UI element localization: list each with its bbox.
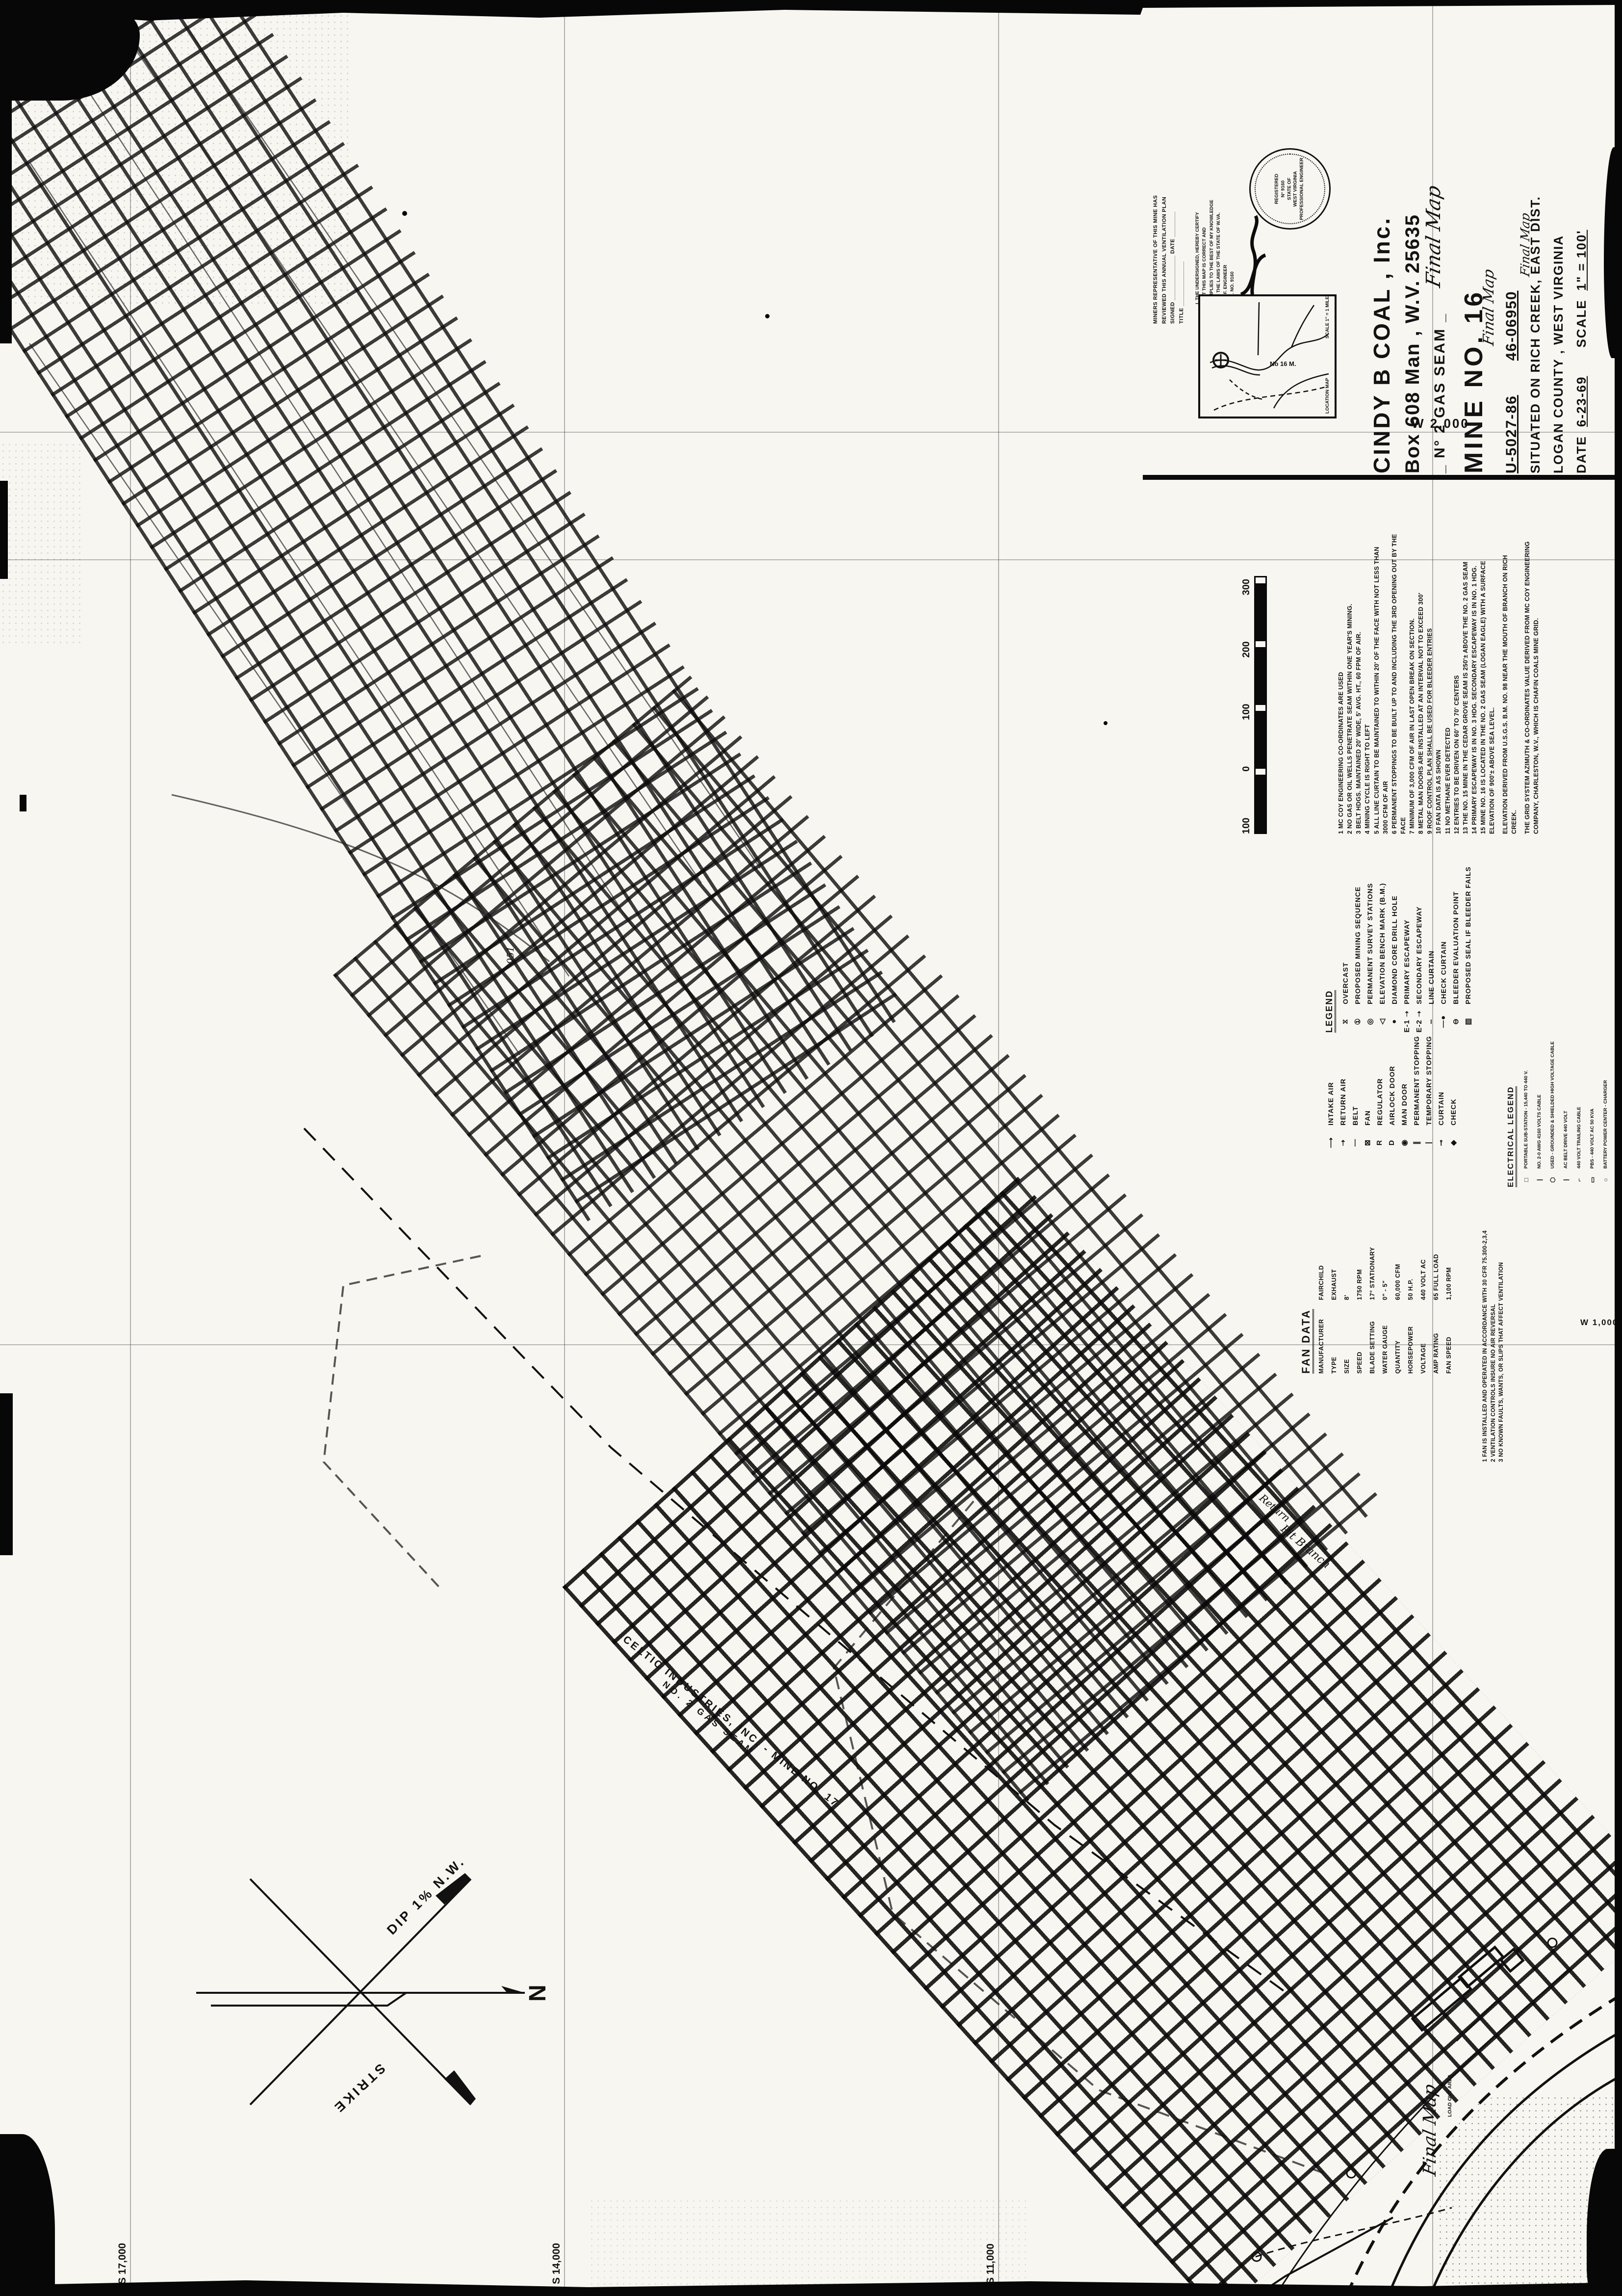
legend-item-label: PERMANENT SURVEY STATIONS: [1366, 883, 1374, 1004]
legend-symbol-icon: ∥: [1412, 1131, 1421, 1154]
fan-data-row: SPEED 1750 RPM: [1356, 1204, 1369, 1374]
review-signed-line: SIGNED ______________ DATE ________: [1169, 123, 1178, 324]
legend-items: ⧖ OVERCAST ① PROPOSED MINING SEQUENCE ◎ …: [1339, 881, 1474, 1033]
electrical-item-label: AC BELT DRIVE 440 VOLT: [1564, 1111, 1569, 1169]
scan-speck: [1104, 721, 1107, 725]
general-note: 4 MINING CYCLE IS RIGHT TO LEFT: [1363, 534, 1372, 834]
fan-data-row: SIZE 8': [1343, 1204, 1356, 1374]
general-note: 14 PRIMARY ESCAPEWAY IS IN NO. 3 HDG. SE…: [1470, 534, 1479, 834]
fan-data-value: EXHAUST: [1331, 1269, 1343, 1300]
fan-data-value: 0" - 5": [1382, 1280, 1394, 1300]
scan-speck: [402, 211, 407, 216]
legend-symbol-icon: ⇢: [1339, 1131, 1347, 1154]
fan-data-row: FAN SPEED 1,100 RPM: [1445, 1204, 1458, 1374]
legend-item: ∥ PERMANENT STOPPING: [1410, 1034, 1422, 1154]
legend-item: R REGULATOR: [1373, 1034, 1386, 1154]
fan-data-label: MANUFACTURER: [1318, 1300, 1331, 1374]
fan-data-label: SIZE: [1343, 1300, 1356, 1374]
general-note: 12 ENTRIES TO BE DRIVEN ON 60' TO 70' CE…: [1452, 534, 1461, 834]
general-note: 11 NO METHANE EVER DETECTED: [1443, 534, 1452, 834]
legend-item-label: BLEEDER EVALUATION POINT: [1452, 891, 1460, 1004]
legend-symbol-icon: ◉: [1400, 1131, 1409, 1154]
cert-line: THAT THIS MAP IS CORRECT AND: [1201, 123, 1208, 304]
electrical-item-label: PORTABLE SUB-STATION - 15,440 TO 440 V.: [1524, 1070, 1529, 1169]
scan-edge-left: [0, 1393, 13, 1555]
legend-item: ◎ PERMANENT SURVEY STATIONS: [1364, 881, 1376, 1033]
legend-symbol-icon: ●: [1390, 1010, 1398, 1033]
legend-item-label: REGULATOR: [1376, 1078, 1384, 1125]
fan-data-value: 17° STATIONARY: [1369, 1247, 1382, 1300]
electrical-symbol-icon: |: [1563, 1173, 1570, 1187]
grid-label-s11000: S 11,000: [985, 2220, 999, 2284]
legend-item: ⊸ CURTAIN: [1435, 1034, 1447, 1154]
legend-item-label: CURTAIN: [1437, 1092, 1445, 1125]
situated-line: SITUATED ON RICH CREEK, EAST DIST.: [1528, 130, 1543, 473]
handwritten-final-map: Final Map: [1420, 2031, 1447, 2179]
cert-line: COMPLIES TO THE BEST OF MY KNOWLEDGE: [1209, 123, 1215, 304]
legend-symbol-icon: ⧖: [1341, 1010, 1349, 1033]
electrical-legend-panel: ELECTRICAL LEGEND □ PORTABLE SUB-STATION…: [1507, 1018, 1622, 1187]
legend-item: E-1 ➝ PRIMARY ESCAPEWAY: [1400, 881, 1413, 1033]
legend-symbol-icon: ①: [1353, 1010, 1362, 1033]
general-note: 5 ALL LINE CURTAIN TO BE MAINTAINED TO W…: [1372, 534, 1390, 834]
legend-item-label: PERMANENT STOPPING: [1413, 1036, 1420, 1125]
legend-symbol-icon: ◎: [1365, 1010, 1374, 1033]
review-line1: MINERS REPRESENTATIVE OF THIS MINE HAS: [1152, 123, 1160, 324]
legend-item-label: FAN: [1364, 1110, 1371, 1125]
electrical-item-label: PBS - 440 VOLT AC 50 KVA: [1590, 1109, 1596, 1169]
handwritten-final-map: Final Map: [1422, 137, 1452, 291]
scale-label: SCALE: [1574, 299, 1589, 347]
legend-item: ⇢ RETURN AIR: [1337, 1034, 1349, 1154]
fan-data-value: 1,100 RPM: [1445, 1267, 1458, 1300]
fan-data-label: HORSEPOWER: [1407, 1300, 1420, 1374]
electrical-symbol-icon: |: [1536, 1173, 1544, 1187]
legend-symbol-icon: ⊖: [1451, 1010, 1460, 1033]
notes-paragraph: THE GRID SYSTEM AZIMUTH & CO-ORDINATES V…: [1523, 534, 1541, 834]
fan-data-row: QUANTITY 60,000 CFM: [1394, 1204, 1407, 1374]
general-note: 10 FAN DATA IS AS SHOWN: [1434, 534, 1443, 834]
fan-data-value: 50 H.P.: [1407, 1278, 1420, 1300]
electrical-symbol-icon: ⬡: [1549, 1173, 1557, 1187]
legend-symbol-icon: ◁: [1378, 1010, 1387, 1033]
fan-data-row: VOLTAGE 440 VOLT AC: [1420, 1204, 1433, 1374]
fan-note: 1 FAN IS INSTALLED AND OPERATED IN ACCOR…: [1481, 1202, 1490, 1462]
title-block-border: [1143, 475, 1622, 480]
electrical-item-label: NO. 2-0 AWG 4160 VOLTS CABLE: [1537, 1095, 1543, 1169]
grid-label-w2000: W 2,000: [1412, 416, 1469, 431]
general-note: 9 ROOF CONTROL PLAN SHALL BE USED FOR BL…: [1425, 534, 1434, 834]
electrical-legend-item: ▭ PBS - 440 VOLT AC 50 KVA: [1586, 1018, 1599, 1187]
legend-heading: LEGEND: [1324, 990, 1336, 1033]
legend-item: ⊖ BLEEDER EVALUATION POINT: [1449, 881, 1462, 1033]
fan-data-label: TYPE: [1331, 1300, 1343, 1374]
graphic-scale-bar: 1000100200300: [1241, 559, 1272, 834]
north-label-slot: N: [525, 1984, 551, 2002]
fan-data-label: QUANTITY: [1394, 1300, 1407, 1374]
legend-item-label: CHECK: [1449, 1098, 1457, 1125]
legend-item-label: BELT: [1351, 1106, 1359, 1125]
legend-items-2: ⟶ INTAKE AIR ⇢ RETURN AIR — BELT ⊠ FAN R…: [1324, 1034, 1459, 1154]
legend-item-label: PROPOSED SEAL IF BLEEDER FAILS: [1464, 866, 1472, 1004]
legend-item-label: MAN DOOR: [1400, 1083, 1408, 1125]
scale-tick: 100: [1241, 818, 1252, 834]
legend-symbol-icon: ▥: [1464, 1010, 1472, 1033]
legend-item: E-2 ➝ SECONDARY ESCAPEWAY: [1413, 881, 1425, 1033]
scale-bar-icon: [1254, 576, 1267, 834]
general-note: 1 MC COY ENGINEERING CO-ORDINATES ARE US…: [1337, 534, 1345, 834]
fan-data-value: FAIRCHILD: [1318, 1265, 1331, 1300]
fan-data-row: AMP RATING 65 FULL LOAD: [1433, 1204, 1445, 1374]
fan-data-value: 1750 RPM: [1356, 1269, 1369, 1300]
scan-edge-left: [0, 29, 12, 343]
scale-tick: 100: [1241, 704, 1252, 720]
electrical-legend-items: □ PORTABLE SUB-STATION - 15,440 TO 440 V…: [1520, 1018, 1613, 1187]
inset-map-drawing: No 16 M.: [1200, 296, 1331, 413]
legend-symbol-icon: E-2 ➝: [1415, 1010, 1423, 1033]
legend-symbol-icon: R: [1375, 1131, 1384, 1154]
fan-data-label: VOLTAGE: [1420, 1300, 1433, 1374]
electrical-symbol-icon: ⌐: [1576, 1173, 1583, 1187]
handwritten-station-051: 051: [505, 933, 518, 964]
permit-number: U-5027-86: [1503, 395, 1520, 473]
electrical-symbol-icon: □: [1523, 1173, 1530, 1187]
ventilation-review-block: MINERS REPRESENTATIVE OF THIS MINE HAS R…: [1152, 123, 1190, 324]
legend-item: — BELT: [1349, 1034, 1361, 1154]
legend-item-label: SECONDARY ESCAPEWAY: [1415, 906, 1423, 1004]
legend-item-label: PROPOSED MINING SEQUENCE: [1354, 887, 1362, 1004]
fan-data-label: SPEED: [1356, 1300, 1369, 1374]
date-scale-line: DATE 6-23-69 SCALE 1" = 100': [1574, 130, 1589, 473]
electrical-item-label: USED - GROUNDED & SHIELDED HIGH VOLTAGE …: [1550, 1042, 1556, 1169]
legend-item-label: RETURN AIR: [1339, 1078, 1347, 1125]
electrical-legend-item: ⌐ 440 VOLT TRAILING CABLE: [1573, 1018, 1586, 1187]
legend-panel-2: ⟶ INTAKE AIR ⇢ RETURN AIR — BELT ⊠ FAN R…: [1324, 1034, 1486, 1154]
legend-item-label: PRIMARY ESCAPEWAY: [1403, 919, 1411, 1004]
fan-note: 3 NO KNOWN FAULTS, WANTS, OR SLIPS THAT …: [1497, 1202, 1506, 1462]
scale-tick: 200: [1241, 641, 1252, 657]
legend-item: ① PROPOSED MINING SEQUENCE: [1351, 881, 1364, 1033]
review-line2: REVIEWED THIS ANNUAL VENTILATION PLAN: [1160, 123, 1169, 324]
legend-item: ◆ CHECK: [1447, 1034, 1459, 1154]
mine-map-sheet: CELTIC INDUSTRIES, INC. - MINE NO. 17 NO…: [0, 0, 1622, 2296]
cert-line: AND THE LAWS OF THE STATE OF W.VA.: [1215, 123, 1222, 304]
general-note: 7 MINIMUM OF 3,000 CFM OF AIR IN LAST OP…: [1408, 534, 1416, 834]
legend-item: ⧖ OVERCAST: [1339, 881, 1351, 1033]
fan-data-value: 8': [1343, 1295, 1356, 1300]
legend-item-label: LINE CURTAIN: [1427, 950, 1435, 1004]
scale-value: 1" = 100': [1574, 230, 1589, 290]
electrical-item-label: 440 VOLT TRAILING CABLE: [1577, 1107, 1582, 1169]
grid-label-s14000: S 14,000: [551, 2220, 565, 2284]
legend-item: D AIRLOCK DOOR: [1386, 1034, 1398, 1154]
legend-symbol-icon: —●: [1439, 1010, 1447, 1033]
general-note: 2 NO GAS OR OIL WELLS PENETRATE SEAM WIT…: [1345, 534, 1354, 834]
electrical-item-label: BATTERY POWER CENTER - CHARGER: [1603, 1080, 1609, 1169]
legend-symbol-icon: ◆: [1449, 1131, 1458, 1154]
date-value: 6-23-69: [1574, 376, 1589, 427]
scan-speck: [20, 795, 26, 811]
fan-note: 2 VENTILATION CONTROLS INSURE NO AIR REV…: [1490, 1202, 1498, 1462]
electrical-legend-item: | AC BELT DRIVE 440 VOLT: [1560, 1018, 1573, 1187]
legend-item: ◁ ELEVATION BENCH MARK (B.M.): [1376, 881, 1388, 1033]
date-label: DATE: [1574, 436, 1589, 473]
fan-data-row: HORSEPOWER 50 H.P.: [1407, 1204, 1420, 1374]
compass-rose: DIP 1% N.W. STRIKE N: [181, 1850, 554, 2129]
general-note: 13 THE NO. 15 MINE IN THE CEDAR GROVE SE…: [1461, 534, 1470, 834]
scan-speck: [765, 314, 770, 318]
scan-edge-left: [0, 481, 8, 579]
fan-data-panel: FAN DATA MANUFACTURER FAIRCHILD TYPE EXH…: [1300, 1204, 1474, 1374]
legend-panel: LEGEND ⧖ OVERCAST ① PROPOSED MINING SEQU…: [1324, 881, 1489, 1033]
legend-symbol-icon: —: [1351, 1131, 1359, 1154]
mine-id-number: 46-06950: [1503, 290, 1520, 361]
legend-item: ● DIAMOND CORE DRILL HOLE: [1388, 881, 1400, 1033]
fan-data-label: BLADE SETTING: [1369, 1300, 1382, 1374]
cert-line: I, THE UNDERSIGNED, HEREBY CERTIFY: [1194, 123, 1201, 304]
legend-item-label: OVERCAST: [1341, 962, 1349, 1004]
fan-data-row: WATER GAUGE 0" - 5": [1382, 1204, 1394, 1374]
legend-item-label: AIRLOCK DOOR: [1388, 1066, 1396, 1125]
legend-item: ⊠ FAN: [1361, 1034, 1373, 1154]
title-block-right: U-5027-86 46-06950 SITUATED ON RICH CREE…: [1503, 130, 1619, 473]
legend-symbol-icon: D: [1388, 1131, 1396, 1154]
general-note: 6 PERMANENT STOPPINGS TO BE BUILT UP TO …: [1390, 534, 1408, 834]
legend-item-label: INTAKE AIR: [1327, 1082, 1335, 1125]
grid-label-w1000: W 1,000: [1580, 1318, 1618, 1328]
fan-notes: 1 FAN IS INSTALLED AND OPERATED IN ACCOR…: [1481, 1202, 1526, 1462]
scale-ticks: 1000100200300: [1241, 579, 1252, 834]
legend-item-label: CHECK CURTAIN: [1440, 941, 1447, 1004]
legend-item: ◉ MAN DOOR: [1398, 1034, 1410, 1154]
general-note: 15 MINE NO. 16 IS LOCATED IN THE NO. 2 G…: [1479, 534, 1496, 834]
general-notes-panel: 1 MC COY ENGINEERING CO-ORDINATES ARE US…: [1337, 534, 1571, 834]
general-notes-list: 1 MC COY ENGINEERING CO-ORDINATES ARE US…: [1337, 534, 1496, 834]
review-title-line: TITLE ______________: [1178, 123, 1186, 324]
legend-symbol-icon: ┄: [1427, 1010, 1436, 1033]
general-note: 8 METAL MAN DOORS ARE INSTALLED AT AN IN…: [1416, 534, 1425, 834]
fan-data-row: BLADE SETTING 17° STATIONARY: [1369, 1204, 1382, 1374]
scan-blob-right: [1604, 147, 1622, 358]
legend-symbol-icon: E-1 ➝: [1402, 1010, 1411, 1033]
fan-data-value: 60,000 CFM: [1394, 1264, 1407, 1300]
electrical-legend-item: | NO. 2-0 AWG 4160 VOLTS CABLE: [1533, 1018, 1546, 1187]
legend-item: ⟶ INTAKE AIR: [1324, 1034, 1337, 1154]
county-line: LOGAN COUNTY , WEST VIRGINIA: [1551, 130, 1566, 473]
electrical-legend-item: ⬡ USED - GROUNDED & SHIELDED HIGH VOLTAG…: [1546, 1018, 1560, 1187]
legend-symbol-icon: ⊠: [1363, 1131, 1372, 1154]
legend-symbol-icon: ⟶: [1326, 1131, 1335, 1154]
legend-symbol-icon: |: [1424, 1131, 1433, 1154]
electrical-symbol-icon: ○: [1602, 1173, 1610, 1187]
fan-data-label: FAN SPEED: [1445, 1300, 1458, 1374]
legend-item-label: TEMPORARY STOPPING: [1425, 1036, 1433, 1125]
fan-data-rows: MANUFACTURER FAIRCHILD TYPE EXHAUST SIZE…: [1318, 1204, 1458, 1374]
handwritten-final-map: Final Map: [1518, 186, 1538, 279]
electrical-legend-item: □ PORTABLE SUB-STATION - 15,440 TO 440 V…: [1520, 1018, 1533, 1187]
electrical-legend-heading: ELECTRICAL LEGEND: [1507, 1086, 1517, 1187]
fan-data-label: WATER GAUGE: [1382, 1300, 1394, 1374]
electrical-legend-item: ○ BATTERY POWER CENTER - CHARGER: [1599, 1018, 1613, 1187]
inset-mine-label-slot: No 16 M.: [1270, 360, 1296, 367]
fan-data-row: TYPE EXHAUST: [1331, 1204, 1343, 1374]
legend-item: ▥ PROPOSED SEAL IF BLEEDER FAILS: [1462, 881, 1474, 1033]
notes-paragraph: ELEVATION DERIVED FROM U.S.G.S. B.M. NO.…: [1501, 534, 1519, 834]
fan-data-row: MANUFACTURER FAIRCHILD: [1318, 1204, 1331, 1374]
electrical-symbol-icon: ▭: [1589, 1173, 1596, 1187]
legend-symbol-icon: ⊸: [1437, 1131, 1445, 1154]
legend-item: | TEMPORARY STOPPING: [1422, 1034, 1435, 1154]
fan-data-value: 65 FULL LOAD: [1433, 1254, 1445, 1300]
inset-scale-note: SCALE 1" = 1 MILE: [1324, 280, 1331, 339]
notes-paragraphs: ELEVATION DERIVED FROM U.S.G.S. B.M. NO.…: [1501, 534, 1541, 834]
legend-item: —● CHECK CURTAIN: [1437, 881, 1449, 1033]
strike-label-slot: STRIKE: [330, 2061, 388, 2117]
fan-data-value: 440 VOLT AC: [1420, 1259, 1433, 1300]
legend-item: ┄ LINE CURTAIN: [1425, 881, 1437, 1033]
scale-tick: 300: [1241, 579, 1252, 595]
legend-item-label: ELEVATION BENCH MARK (B.M.): [1378, 883, 1386, 1004]
load-out-area-label: LOAD OUT AREA: [1447, 2066, 1460, 2117]
grid-label-s17000: S 17,000: [117, 2220, 130, 2284]
legend-item-label: DIAMOND CORE DRILL HOLE: [1390, 895, 1398, 1004]
inset-map-title: LOCATION MAP: [1324, 350, 1331, 414]
scale-tick: 0: [1241, 766, 1252, 772]
general-note: 3 BELT HDGS. MAINTAINED 20' WIDE, 5' AVG…: [1354, 534, 1363, 834]
fan-data-label: AMP RATING: [1433, 1300, 1445, 1374]
handwritten-final-map: Final Map: [1480, 231, 1503, 348]
fan-data-heading: FAN DATA: [1300, 1309, 1314, 1374]
location-inset-map: No 16 M.: [1198, 294, 1337, 418]
fan-note-list: 1 FAN IS INSTALLED AND OPERATED IN ACCOR…: [1481, 1202, 1506, 1462]
company-name: CINDY B COAL , Inc.: [1368, 135, 1395, 473]
